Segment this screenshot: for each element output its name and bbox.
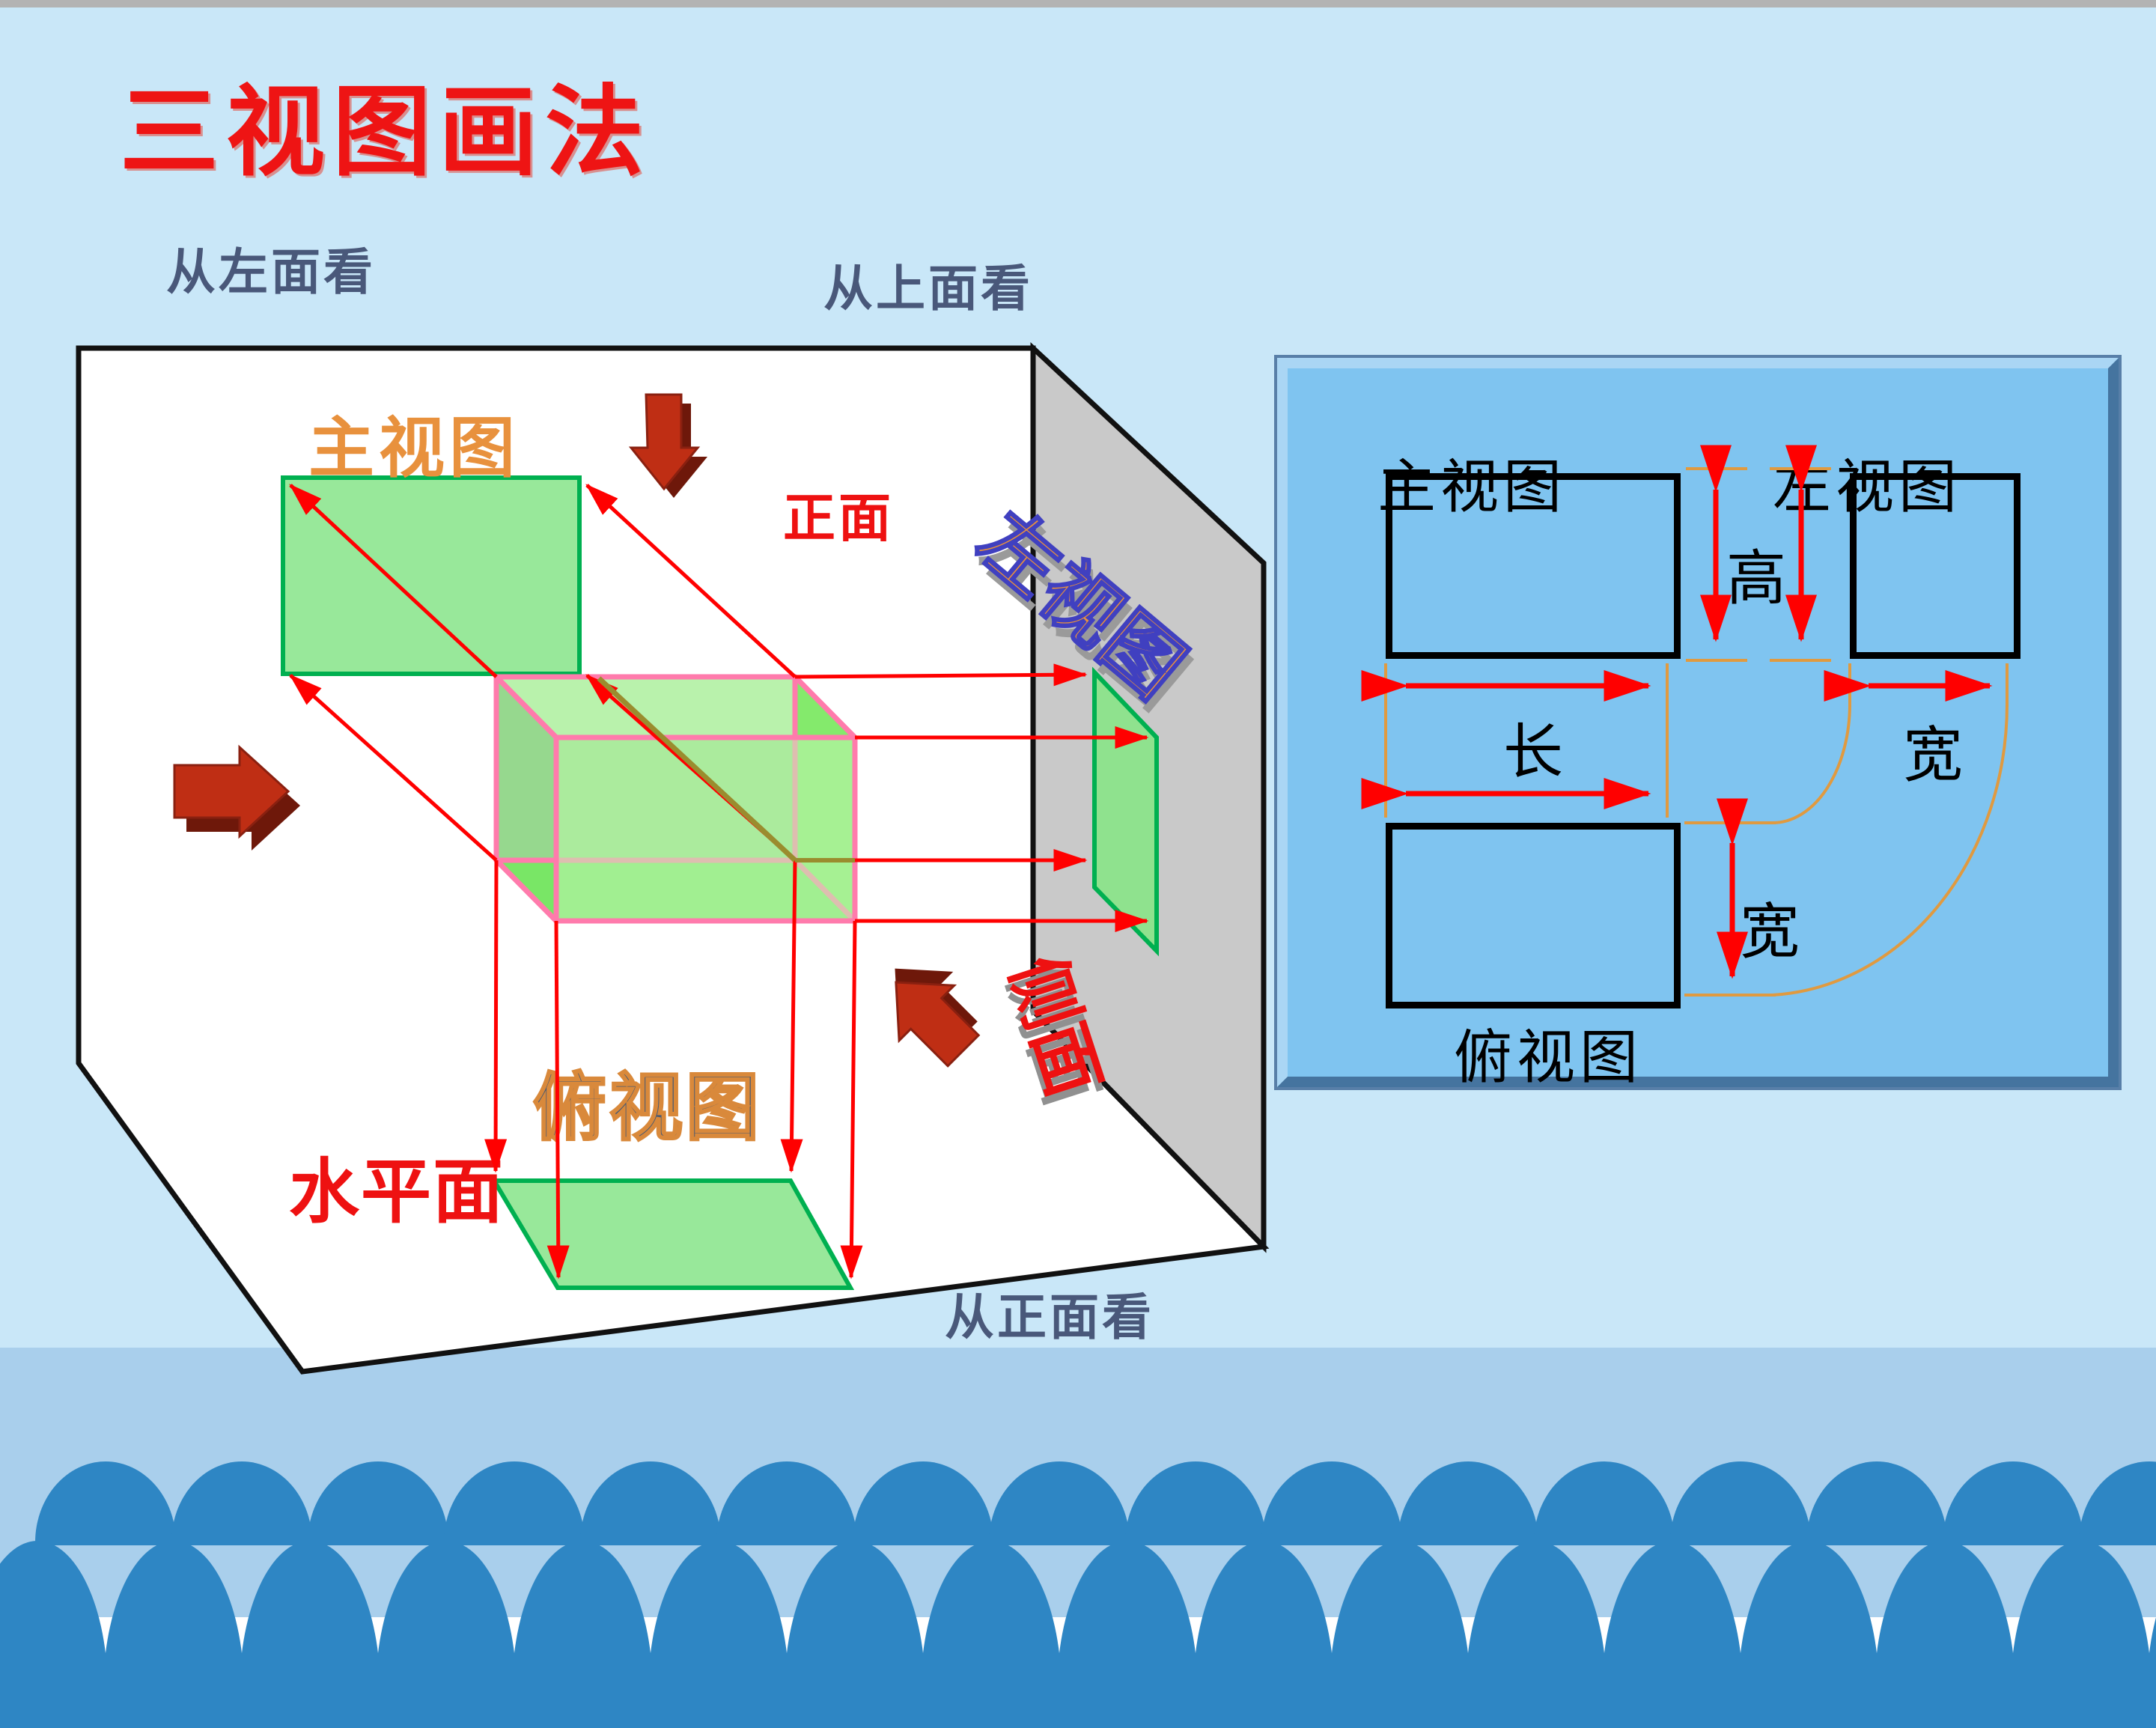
frontal-horizontal-plane [79, 348, 1264, 1372]
slide: 三视图画法 从左面看 从上面看 从正面看 主视图 正面 水平面 俯视图 左视图 … [0, 0, 2156, 1617]
top-gray-strip [0, 0, 2156, 7]
panel-length-label: 长 [1503, 704, 1563, 791]
label-horizontal-plane: 水平面 [289, 1135, 505, 1237]
panel-height-label: 高 [1726, 530, 1786, 617]
label-view-from-front: 从正面看 [945, 1277, 1154, 1349]
view-arrow-left [174, 747, 300, 851]
three-view-panel: 主视图 左视图 俯视图 高 长 宽 宽 [1277, 358, 2119, 1087]
label-view-from-left: 从左面看 [166, 232, 376, 304]
profile-plane [1033, 348, 1264, 1247]
front-view-projection [283, 478, 579, 674]
label-front-face: 正面 [783, 476, 894, 552]
panel-width-label-side: 宽 [1903, 707, 1963, 794]
cuboid [496, 677, 855, 921]
panel-top-view-rect [1386, 823, 1681, 1008]
view-arrow-top [631, 395, 707, 498]
label-left-view-wordart: 左视图 [959, 479, 1214, 719]
label-side-face: 侧面 [990, 942, 1130, 1107]
ray-through-box [599, 678, 795, 860]
panel-main-view-rect [1386, 473, 1681, 659]
label-top-view-scene: 俯视图 [533, 1048, 762, 1154]
panel-top-view-label: 俯视图 [1454, 1011, 1642, 1095]
panel-left-view-rect [1850, 473, 2021, 659]
label-view-from-top: 从上面看 [823, 249, 1033, 320]
page-title: 三视图画法 [120, 52, 651, 195]
view-arrow-front [861, 941, 997, 1077]
left-view-projection [1094, 672, 1157, 951]
top-view-projection [494, 1181, 850, 1288]
label-front-view: 主视图 [308, 395, 520, 490]
panel-width-label-top: 宽 [1740, 883, 1800, 970]
